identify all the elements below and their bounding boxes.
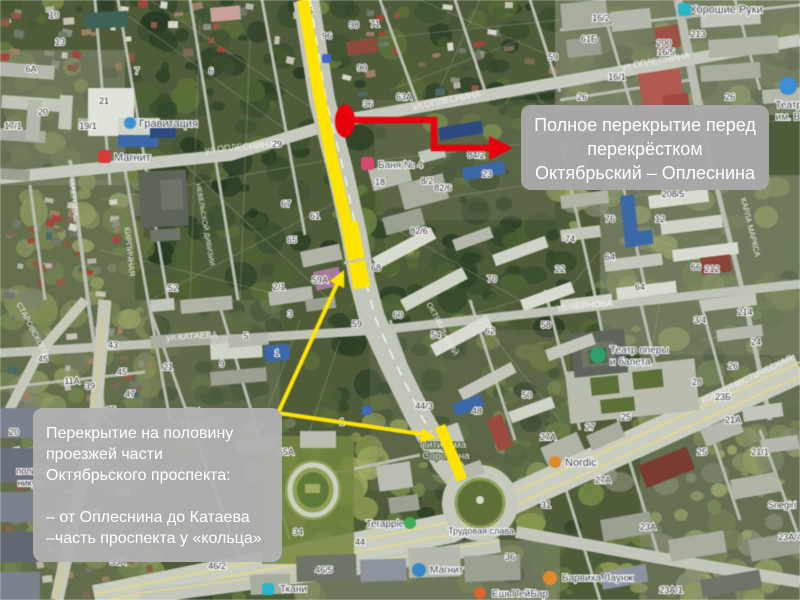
svg-text:39: 39 [85, 381, 95, 391]
svg-text:64: 64 [605, 252, 615, 262]
svg-text:9: 9 [219, 359, 224, 369]
svg-text:16/2: 16/2 [592, 13, 610, 23]
svg-text:96: 96 [322, 31, 332, 41]
svg-text:45: 45 [38, 354, 48, 364]
svg-text:3: 3 [287, 309, 292, 319]
svg-text:Гравитация: Гравитация [139, 118, 198, 130]
svg-text:18: 18 [375, 177, 385, 187]
svg-text:3/4: 3/4 [694, 315, 707, 325]
svg-text:Terapple: Terapple [366, 519, 405, 530]
svg-text:Магнит: Магнит [430, 565, 464, 576]
svg-text:44: 44 [355, 537, 365, 547]
svg-text:Баня № 4: Баня № 4 [378, 160, 423, 171]
svg-text:200: 200 [656, 38, 671, 48]
svg-text:5: 5 [243, 331, 248, 341]
svg-text:27А: 27А [540, 432, 556, 442]
svg-text:25: 25 [697, 447, 707, 457]
svg-text:68: 68 [371, 263, 381, 273]
svg-text:44/3: 44/3 [415, 401, 433, 411]
svg-text:11А: 11А [64, 376, 79, 386]
svg-text:60: 60 [393, 310, 403, 320]
svg-text:26: 26 [728, 361, 738, 371]
svg-text:28: 28 [692, 377, 702, 387]
svg-text:22: 22 [555, 264, 565, 274]
svg-text:208/5: 208/5 [662, 189, 685, 199]
svg-text:20: 20 [9, 427, 19, 437]
svg-text:63А: 63А [396, 92, 412, 102]
svg-text:Nordic: Nordic [565, 457, 597, 469]
svg-text:50: 50 [522, 390, 532, 400]
svg-text:23А: 23А [640, 522, 656, 532]
svg-text:62: 62 [485, 326, 495, 336]
svg-text:16/1: 16/1 [608, 72, 626, 82]
svg-text:Трудовая слава: Трудовая слава [448, 526, 514, 536]
svg-text:212: 212 [704, 264, 719, 274]
svg-text:Театр оперы: Театр оперы [610, 345, 669, 356]
svg-text:65: 65 [287, 235, 297, 245]
svg-text:Snegiri: Snegiri [768, 500, 796, 510]
svg-text:23А/1: 23А/1 [659, 585, 683, 595]
svg-text:12: 12 [655, 214, 665, 224]
svg-text:13: 13 [55, 37, 65, 47]
svg-text:23: 23 [482, 169, 492, 179]
svg-text:59А: 59А [312, 275, 328, 285]
svg-text:Барвиха Лаунж: Барвиха Лаунж [562, 573, 633, 584]
svg-text:47: 47 [125, 389, 135, 399]
svg-text:23Б: 23Б [715, 392, 731, 402]
svg-text:Театр д: Театр д [775, 100, 800, 111]
svg-text:27А: 27А [595, 475, 611, 485]
svg-text:27: 27 [585, 422, 595, 432]
svg-text:6А: 6А [25, 64, 36, 74]
svg-text:64: 64 [635, 282, 645, 292]
svg-text:24: 24 [751, 337, 761, 347]
svg-text:48: 48 [472, 406, 482, 416]
svg-text:54: 54 [431, 330, 441, 340]
svg-text:45: 45 [117, 367, 127, 377]
svg-text:66: 66 [691, 262, 701, 272]
svg-text:84/2: 84/2 [467, 150, 485, 160]
svg-text:7: 7 [134, 66, 139, 76]
svg-text:20: 20 [38, 107, 48, 117]
svg-text:70: 70 [487, 274, 497, 284]
svg-text:16/5: 16/5 [657, 47, 675, 57]
svg-text:17/1: 17/1 [4, 121, 22, 131]
svg-text:21: 21 [99, 96, 109, 106]
svg-text:82/6: 82/6 [410, 226, 428, 236]
svg-text:213: 213 [690, 29, 705, 39]
svg-text:2/1: 2/1 [273, 282, 286, 292]
svg-text:21: 21 [163, 362, 173, 372]
svg-text:98: 98 [349, 20, 359, 30]
svg-text:25: 25 [621, 412, 631, 422]
svg-text:43: 43 [108, 340, 118, 350]
svg-text:21/1: 21/1 [751, 447, 769, 457]
svg-text:61Б: 61Б [581, 34, 597, 44]
svg-text:26: 26 [725, 92, 735, 102]
svg-text:ЕшьПейБар: ЕшьПейБар [492, 589, 548, 600]
svg-text:им. В.С: им. В.С [776, 112, 800, 123]
svg-text:Хорошие Руки: Хорошие Руки [689, 4, 763, 16]
svg-text:1: 1 [274, 348, 279, 358]
svg-text:74: 74 [565, 234, 575, 244]
svg-text:31: 31 [541, 500, 551, 510]
svg-text:19/1: 19/1 [79, 121, 97, 131]
svg-text:71: 71 [370, 19, 380, 29]
svg-text:8/2: 8/2 [421, 176, 434, 186]
svg-text:6: 6 [208, 66, 213, 76]
svg-text:46/2: 46/2 [208, 561, 226, 571]
svg-text:29: 29 [272, 139, 282, 149]
svg-text:67: 67 [281, 199, 291, 209]
svg-text:21А: 21А [725, 415, 741, 425]
svg-text:26: 26 [577, 92, 587, 102]
svg-text:34: 34 [293, 527, 303, 537]
svg-text:Ткани: Ткани [280, 584, 307, 595]
svg-text:214: 214 [737, 307, 752, 317]
svg-text:36: 36 [505, 552, 515, 562]
svg-text:90: 90 [357, 63, 367, 73]
svg-text:36: 36 [363, 99, 373, 109]
svg-text:23А/4: 23А/4 [778, 532, 800, 542]
svg-text:52: 52 [168, 283, 178, 293]
svg-text:59: 59 [352, 319, 362, 329]
svg-text:76: 76 [605, 214, 615, 224]
svg-text:Магнит: Магнит [114, 152, 151, 164]
svg-text:46/5: 46/5 [315, 565, 333, 575]
svg-text:10: 10 [49, 10, 59, 20]
svg-text:и балета: и балета [610, 356, 651, 368]
svg-text:58: 58 [541, 320, 551, 330]
svg-text:61: 61 [310, 211, 320, 221]
svg-text:59: 59 [548, 52, 558, 62]
svg-text:82/6: 82/6 [434, 183, 452, 193]
